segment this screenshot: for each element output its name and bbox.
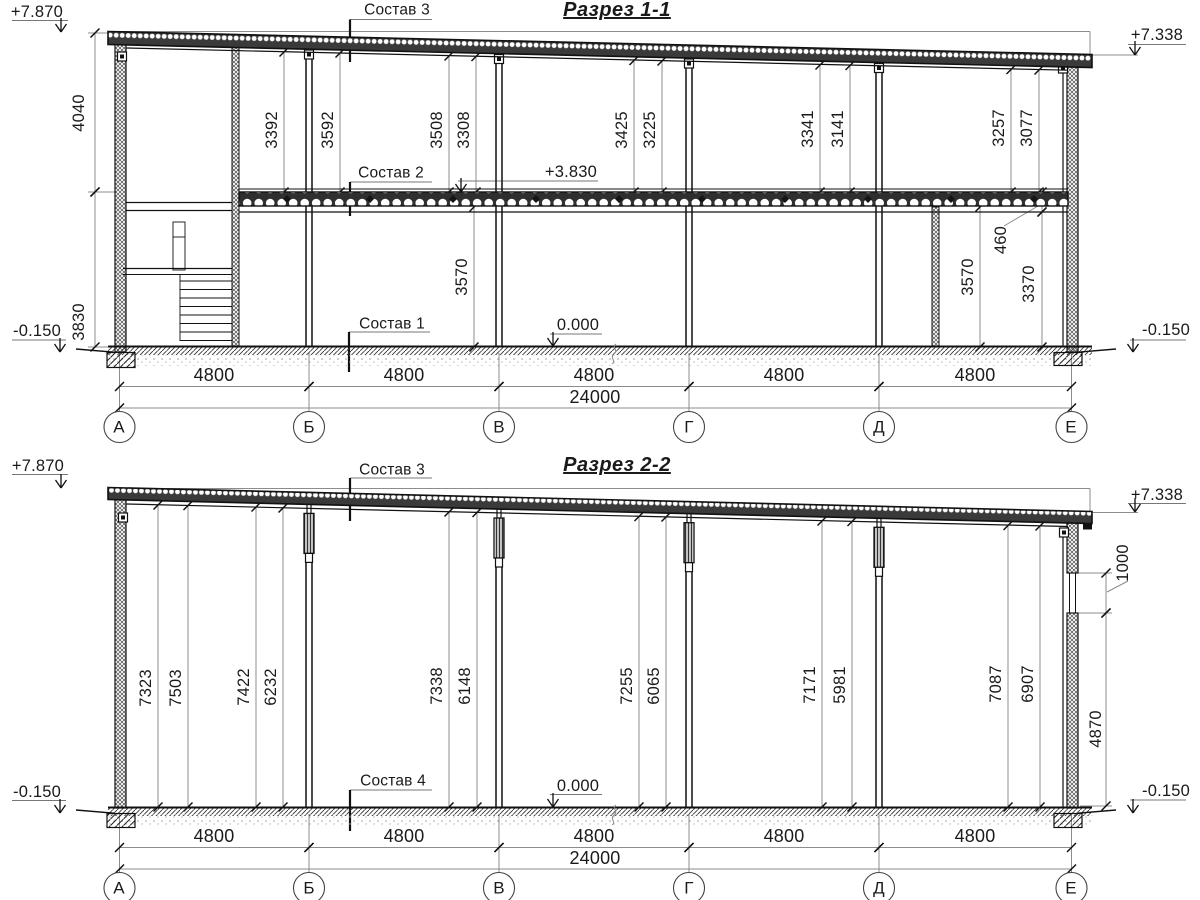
section1-title: Разрез 1-1 — [563, 0, 671, 20]
foundation-right-s2 — [1054, 814, 1082, 828]
elevation-mark: -0.150 — [1142, 322, 1190, 339]
dim-label: 4800 — [384, 366, 425, 384]
elevation-mark: +7.338 — [1131, 27, 1183, 44]
dim-label: 6907 — [1020, 665, 1037, 703]
dim-label: 3077 — [1019, 109, 1036, 147]
axis-bubble-label: Е — [1065, 880, 1077, 897]
dim-label: 3141 — [830, 110, 847, 148]
dim-label: 3392 — [264, 111, 281, 149]
dim-label: 7087 — [988, 665, 1005, 703]
axis-bubble-label: Б — [303, 419, 314, 436]
dim-label: 3570 — [960, 258, 977, 296]
elevation-mark: +7.870 — [11, 4, 63, 21]
section2-title: Разрез 2-2 — [563, 455, 671, 475]
axis-bubble-label: В — [493, 419, 505, 436]
partition-s1 — [932, 207, 939, 347]
dim-label: 3830 — [71, 303, 88, 341]
dim-label: 6065 — [646, 667, 663, 705]
dim-label: 7255 — [619, 667, 636, 705]
axis-bubble-label: Е — [1065, 419, 1077, 436]
foundation-right-s1 — [1054, 353, 1082, 366]
dim-label: 7422 — [236, 668, 253, 706]
dim-label: 4040 — [71, 94, 88, 132]
dim-label: 5981 — [832, 666, 849, 704]
dim-label: 4800 — [194, 827, 235, 845]
dim-label: 1000 — [1115, 544, 1132, 582]
elevation-mark: 0.000 — [557, 778, 599, 795]
dim-label: 4870 — [1088, 710, 1105, 748]
axis-bubble-label: Д — [873, 419, 885, 436]
dim-label: 3425 — [614, 111, 631, 149]
elevation-mark: +7.338 — [1131, 487, 1183, 504]
foundation-left-s2 — [107, 814, 135, 828]
dim-label: 460 — [993, 226, 1010, 254]
dim-label-total: 24000 — [569, 388, 620, 406]
elevation-mark: -0.150 — [13, 784, 61, 801]
axis-bubble-label: Б — [303, 880, 314, 897]
dim-label: 3225 — [642, 111, 659, 149]
dim-label: 3257 — [991, 109, 1008, 147]
left-wall-s1 — [115, 33, 126, 352]
dim-label-total: 24000 — [569, 849, 620, 867]
dim-label: 7503 — [168, 669, 185, 707]
stair-wall-s1 — [232, 47, 239, 347]
left-wall-s2 — [115, 489, 126, 808]
layer-label-sostav4-s2: Состав 4 — [360, 773, 426, 789]
layer-label-sostav1-s1: Состав 1 — [359, 316, 425, 332]
dim-label: 7171 — [802, 666, 819, 704]
staircase — [123, 222, 232, 341]
dim-label: 4800 — [574, 827, 615, 845]
layer-label-sostav3-s1: Состав 3 — [364, 2, 430, 18]
dim-label: 3592 — [320, 111, 337, 149]
axis-bubble-label: Г — [684, 419, 693, 436]
dim-label: 4800 — [574, 366, 615, 384]
dim-label: 4800 — [764, 366, 805, 384]
dim-label: 6148 — [457, 667, 474, 705]
columns-s2 — [304, 504, 884, 807]
dim-label: 3370 — [1021, 265, 1038, 303]
dim-label: 4800 — [384, 827, 425, 845]
elevation-mark: +3.830 — [545, 164, 597, 181]
elevation-mark: -0.150 — [1142, 783, 1190, 800]
dim-label: 4800 — [955, 827, 996, 845]
layer-label-sostav3-s2: Состав 3 — [359, 462, 425, 478]
hollow-core-slab — [239, 192, 1068, 206]
axis-bubble-label: А — [113, 880, 125, 897]
elevation-mark: 0.000 — [557, 317, 599, 334]
drawing-sheet: Разрез 1-1 Состав 3 Состав 2 Состав 1 +7… — [0, 0, 1200, 900]
dim-label: 3341 — [800, 110, 817, 148]
layer-label-sostav2-s1: Состав 2 — [358, 165, 424, 181]
dim-label: 3570 — [454, 258, 471, 296]
dim-label: 3308 — [456, 111, 473, 149]
dim-label: 4800 — [194, 366, 235, 384]
roof-s1 — [108, 32, 1092, 68]
foundation-left-s1 — [107, 353, 135, 368]
dim-label: 7338 — [429, 667, 446, 705]
dim-label: 4800 — [955, 366, 996, 384]
axis-bubble-label: Г — [684, 880, 693, 897]
right-wall-lower-s2 — [1067, 613, 1078, 808]
dim-label: 6232 — [263, 668, 280, 706]
axis-bubble-label: В — [493, 880, 505, 897]
elevation-mark: +7.870 — [12, 458, 64, 475]
dim-label: 3508 — [429, 111, 446, 149]
elevation-mark: -0.150 — [13, 323, 61, 340]
axis-bubble-label: А — [113, 419, 125, 436]
axis-bubble-label: Д — [873, 880, 885, 897]
axis-bubbles-s1 — [104, 412, 1087, 443]
dim-label: 4800 — [764, 827, 805, 845]
dim-label: 7323 — [138, 669, 155, 707]
axis-bubbles-s2 — [104, 873, 1087, 900]
